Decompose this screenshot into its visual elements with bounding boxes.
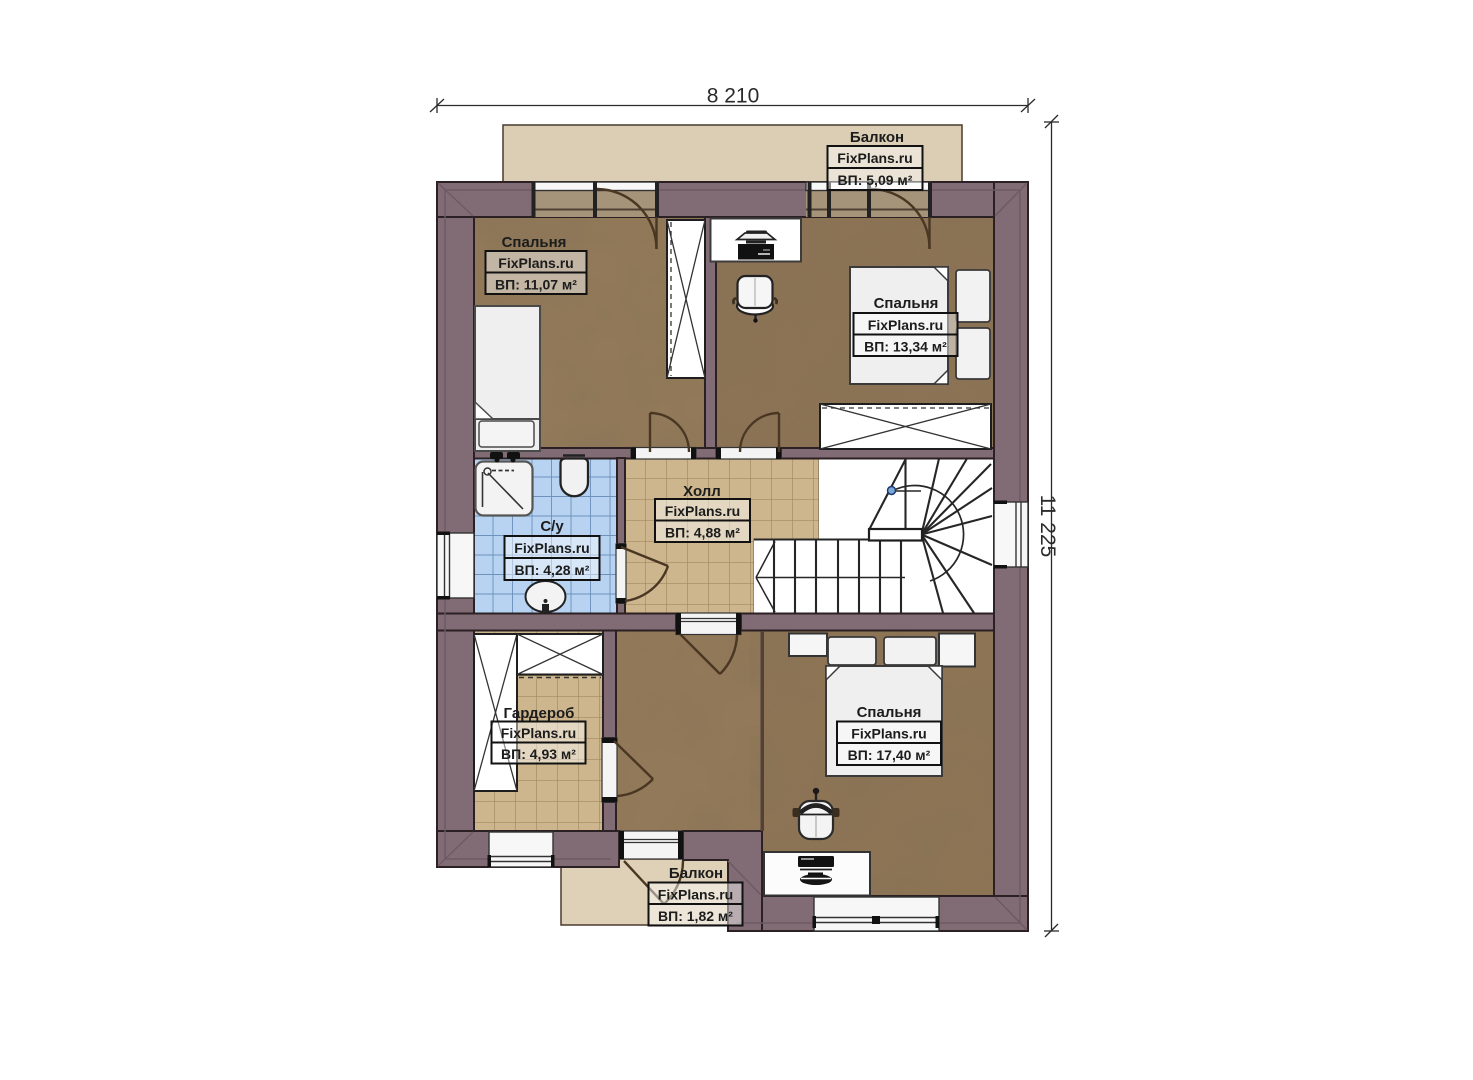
svg-text:Гардероб: Гардероб (504, 705, 575, 722)
svg-text:FixPlans.ru: FixPlans.ru (837, 150, 912, 166)
svg-text:FixPlans.ru: FixPlans.ru (665, 503, 740, 519)
svg-text:FixPlans.ru: FixPlans.ru (498, 255, 573, 271)
svg-text:Спальня: Спальня (857, 704, 922, 721)
svg-text:ВП: 4,88 м²: ВП: 4,88 м² (665, 525, 740, 541)
svg-text:Спальня: Спальня (502, 234, 567, 251)
svg-text:ВП: 11,07 м²: ВП: 11,07 м² (495, 277, 577, 293)
svg-text:FixPlans.ru: FixPlans.ru (851, 726, 926, 742)
svg-text:Спальня: Спальня (874, 295, 939, 312)
svg-text:ВП: 1,82 м²: ВП: 1,82 м² (658, 908, 733, 924)
svg-text:ВП: 4,28 м²: ВП: 4,28 м² (515, 562, 590, 578)
svg-text:FixPlans.ru: FixPlans.ru (658, 887, 733, 903)
svg-text:Балкон: Балкон (669, 865, 723, 882)
svg-text:FixPlans.ru: FixPlans.ru (501, 725, 576, 741)
svg-text:FixPlans.ru: FixPlans.ru (868, 317, 943, 333)
svg-text:ВП: 4,93 м²: ВП: 4,93 м² (501, 746, 576, 762)
svg-text:Холл: Холл (683, 483, 721, 500)
svg-text:ВП: 17,40 м²: ВП: 17,40 м² (848, 747, 931, 763)
svg-text:FixPlans.ru: FixPlans.ru (514, 540, 589, 556)
svg-text:Балкон: Балкон (850, 129, 904, 146)
svg-text:11 225: 11 225 (1036, 495, 1059, 558)
svg-text:ВП: 13,34 м²: ВП: 13,34 м² (864, 339, 947, 355)
svg-text:8 210: 8 210 (707, 85, 760, 108)
svg-text:ВП: 5,09 м²: ВП: 5,09 м² (838, 172, 913, 188)
svg-text:С/у: С/у (540, 518, 564, 535)
